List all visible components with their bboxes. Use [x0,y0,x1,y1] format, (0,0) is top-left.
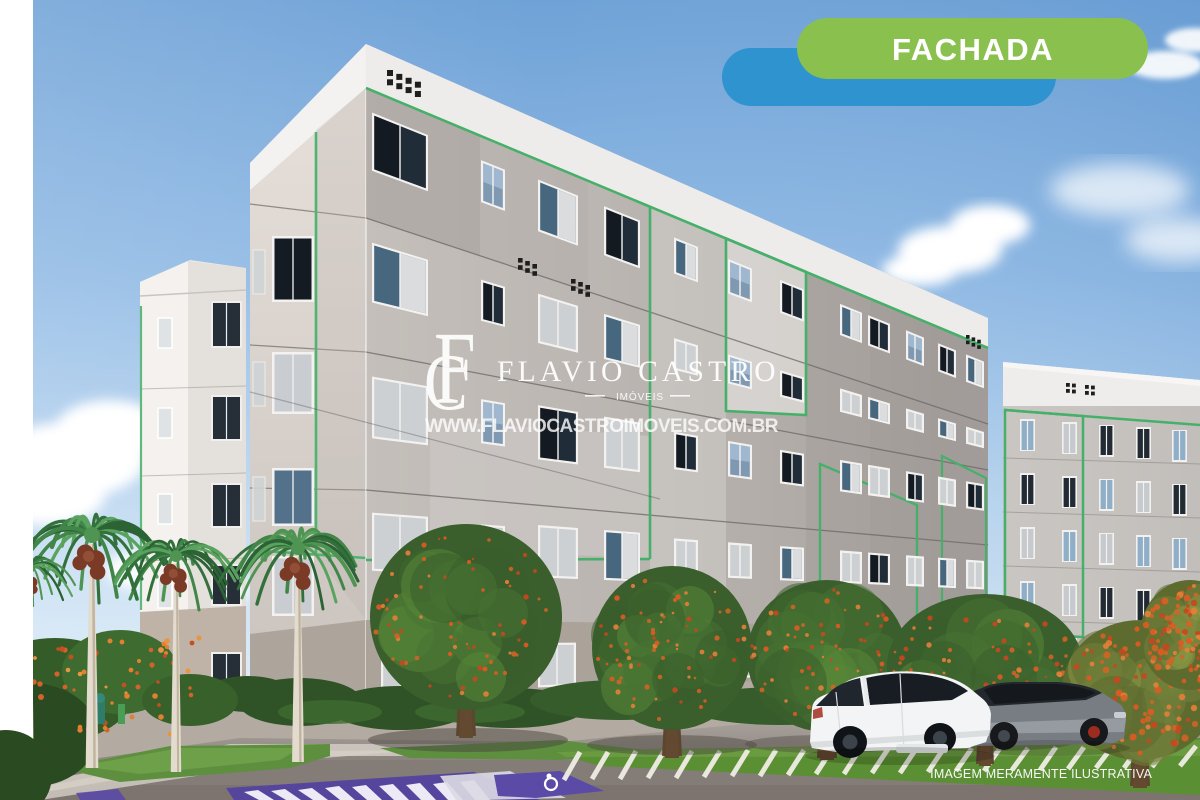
svg-text:IMÓVEIS: IMÓVEIS [616,390,664,403]
svg-text:WWW.FLAVIOCASTROIMOVEIS.COM.BR: WWW.FLAVIOCASTROIMOVEIS.COM.BR [425,416,779,437]
svg-text:IMAGEM MERAMENTE ILUSTRATIVA: IMAGEM MERAMENTE ILUSTRATIVA [930,767,1152,781]
svg-text:FLAVIO CASTRO: FLAVIO CASTRO [497,356,780,388]
svg-text:F: F [434,310,476,426]
svg-text:FACHADA: FACHADA [892,32,1054,67]
